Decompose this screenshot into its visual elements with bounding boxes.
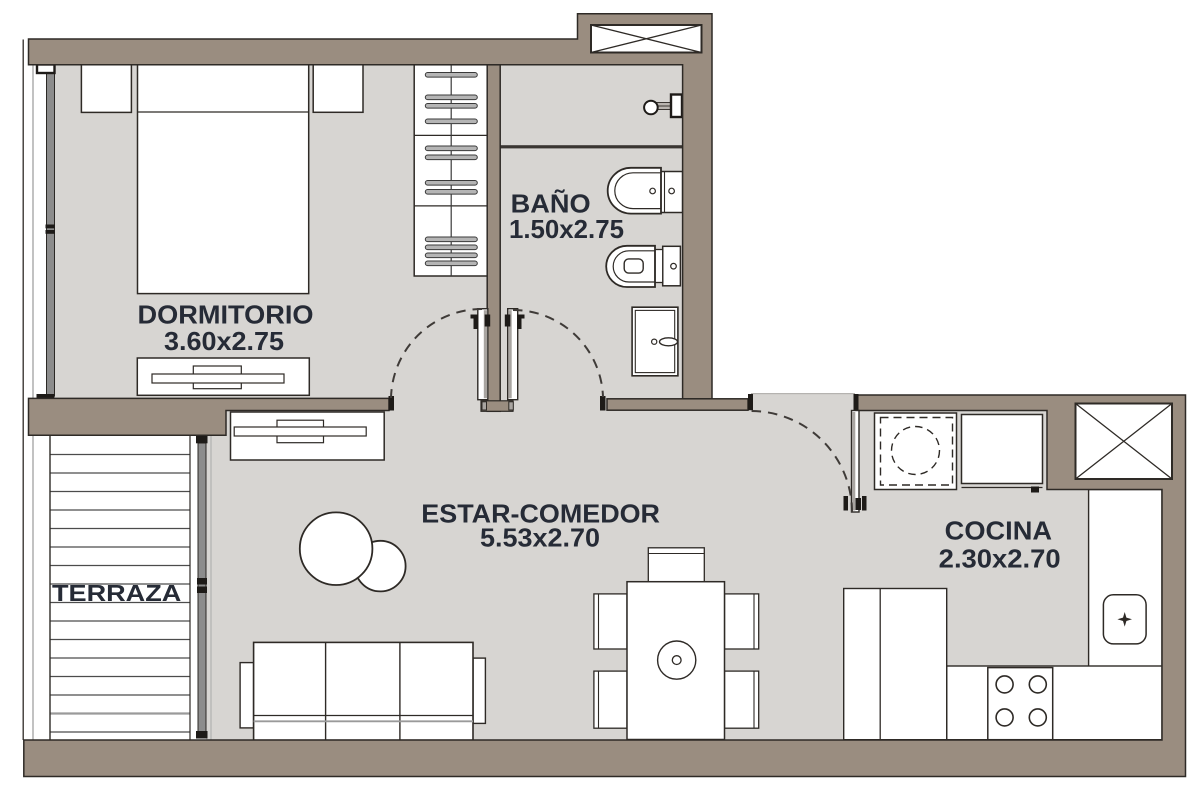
svg-text:DORMITORIO: DORMITORIO: [138, 299, 314, 329]
svg-text:1.50x2.75: 1.50x2.75: [509, 214, 624, 244]
svg-text:3.60x2.75: 3.60x2.75: [164, 326, 284, 356]
svg-text:TERRAZA: TERRAZA: [52, 580, 181, 606]
svg-text:5.53x2.70: 5.53x2.70: [480, 522, 600, 552]
svg-text:COCINA: COCINA: [945, 515, 1053, 545]
svg-text:2.30x2.70: 2.30x2.70: [939, 543, 1061, 573]
